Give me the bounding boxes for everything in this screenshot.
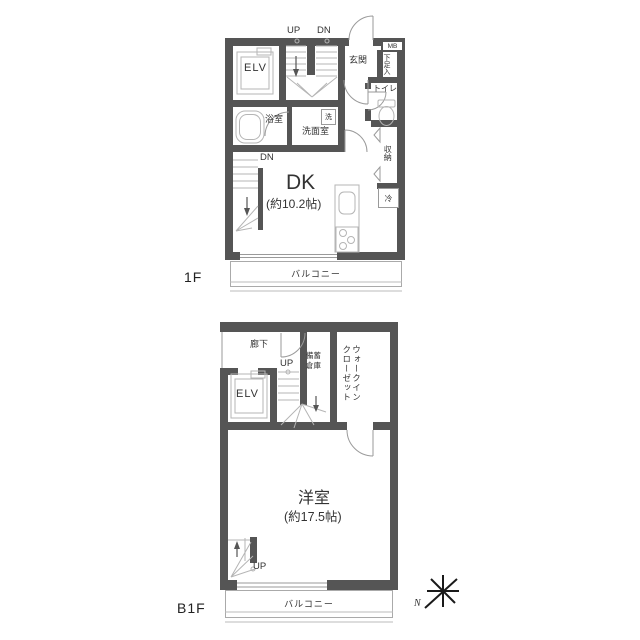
b1f-corridor-door-arc [281,333,305,357]
label-washroom: 洗面室 [302,127,329,136]
entrance-door-arc [349,16,373,40]
hall-dk-door-arc [345,130,367,152]
washer-box: 洗 [321,109,336,125]
label-dn-1f: DN [317,26,331,36]
door-arcs [265,16,386,456]
label-western-room: 洋室 [298,491,330,507]
compass-north-label: N [414,599,421,609]
stairs-b1f-corner-arrow [234,541,240,557]
label-bath: 浴室 [265,115,283,124]
label-up-1f: UP [287,26,300,36]
wic-door-arc [347,430,373,456]
label-elv-b1f: ELV [236,389,259,400]
label-entrance: 玄関 [349,56,367,65]
label-dk: DK [286,172,315,193]
label-wic-line1: ウォークイン [351,345,361,429]
stairs-b1f-main [278,370,326,428]
stairs-1f-upper-arrow [293,56,299,77]
floor-label-b1f: B1F [177,600,206,616]
label-up-b1f: UP [280,359,293,369]
floor-plan-canvas: バルコニー バルコニー [0,0,640,640]
stairs-b1f-corner [228,538,255,577]
bathtub-icon [236,111,264,143]
kitchen-counter-icon [335,185,359,252]
toilet-icon [378,100,395,126]
fridge-box: 冷 [378,188,399,208]
label-stock-line1: 備蓄 [306,351,321,361]
label-dk-size: (約10.2帖) [266,198,321,210]
compass-icon [425,575,459,608]
label-dn-lower: DN [260,153,274,163]
label-toilet: トイレ [373,85,397,93]
label-stock-room: 備蓄 倉庫 [306,351,321,371]
plan-linework [0,0,640,640]
label-up-lower-b1f: UP [253,562,266,572]
meter-box-label: MB [388,43,398,50]
label-closet: 収納 [383,145,392,161]
stairs-1f-lower-arrow [244,197,250,216]
genkan-hall-door-arc [344,80,368,104]
label-walk-in-closet: ウォークイン クローゼット [341,345,361,431]
label-western-room-size: (約17.5帖) [284,511,342,524]
label-stock-line2: 倉庫 [306,361,321,371]
closet-folding-door-icon [374,128,380,181]
washer-label: 洗 [325,112,332,122]
meter-box: MB [381,40,404,52]
stairs-1f-lower [233,160,258,231]
label-shoe-box: 下足入 [382,54,390,75]
windows [222,255,337,588]
floor-label-1f: 1F [184,269,202,285]
label-elv-1f: ELV [244,63,267,74]
label-wic-line2: クローゼット [341,345,351,429]
fridge-label: 冷 [385,193,393,204]
label-corridor: 廊下 [250,340,268,349]
stairs-1f-upper [286,39,337,97]
